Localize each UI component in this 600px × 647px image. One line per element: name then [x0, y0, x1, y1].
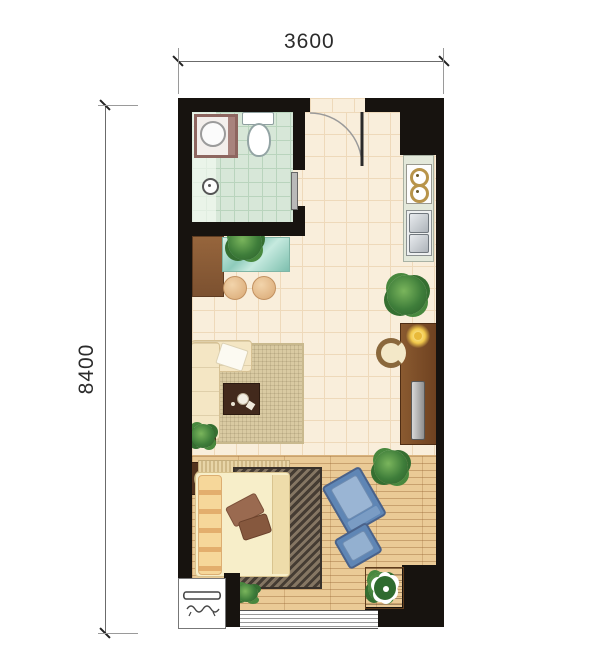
wall-bottom-left-pier: [224, 573, 240, 627]
sink-basin: [409, 234, 429, 253]
floor-plant-icon: [374, 450, 408, 484]
bar-stool: [252, 276, 276, 300]
wall-bathroom-bottom: [178, 222, 305, 236]
washer-drum-icon: [200, 121, 226, 147]
dimension-extension-line: [178, 48, 179, 94]
bed: [195, 472, 290, 577]
kitchen-sink: [406, 210, 432, 256]
bathroom-sliding-door: [291, 172, 298, 210]
white-flowers-icon: [374, 576, 396, 600]
dimension-extension-line: [98, 633, 138, 634]
coffee-table: [223, 383, 260, 415]
bar-cabinet: [192, 236, 224, 297]
ac-unit-icon: [179, 579, 225, 628]
napkin-icon: [246, 401, 256, 411]
desk-lamp-icon: [406, 324, 430, 348]
entry-door: [304, 112, 366, 172]
floor-drain-icon: [202, 178, 219, 195]
dimension-left-line: [105, 105, 106, 633]
sink-basin: [409, 213, 429, 233]
washer-control-panel: [228, 117, 235, 155]
sofa-plant-icon: [191, 424, 215, 448]
dimension-top-line: [178, 61, 444, 62]
tv: [411, 381, 425, 440]
entry-threshold: [310, 98, 365, 112]
wall-left: [178, 98, 192, 578]
dimension-top-label: 3600: [284, 30, 335, 54]
bed-footboard: [272, 475, 289, 574]
burner-icon: [410, 184, 429, 203]
dimension-left-label: 8400: [75, 342, 99, 396]
corner-plant-icon: [387, 275, 427, 315]
dimension-extension-line: [443, 48, 444, 94]
dimension-extension-line: [98, 105, 138, 106]
cup-icon: [231, 402, 235, 406]
floor-plan: [178, 98, 444, 627]
bar-stool: [223, 276, 247, 300]
bed-pillows: [198, 475, 222, 575]
flower-planter: [365, 567, 404, 609]
ac-outdoor-unit: [178, 578, 226, 629]
stove: [406, 164, 432, 204]
ring-chair: [376, 338, 406, 368]
wall-right: [436, 98, 444, 627]
washing-machine: [194, 114, 238, 158]
ottoman-cushion: [341, 530, 375, 562]
toilet: [247, 123, 271, 157]
wall-top-left: [178, 98, 310, 112]
door-swing-arc: [310, 113, 362, 166]
window: [240, 610, 378, 629]
wall-bottom-mid: [378, 610, 402, 627]
